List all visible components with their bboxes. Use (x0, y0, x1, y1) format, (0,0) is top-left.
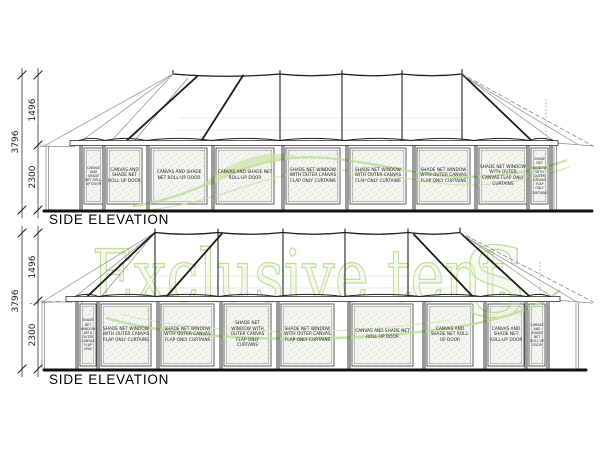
top-roof (40, 70, 594, 147)
top-eave (70, 141, 558, 146)
panel-inner-frame (109, 150, 140, 202)
blueprint-page: Exclusive tent S (0, 0, 600, 454)
drawing-svg: Exclusive tent S (0, 0, 600, 454)
panel-inner-frame (531, 306, 543, 364)
watermark-text: Exclusive tent (92, 236, 505, 319)
panel-inner-frame (352, 150, 404, 202)
bottom-dimension-lines (18, 226, 50, 377)
panel-inner-frame (86, 150, 101, 202)
top-dimension-lines (18, 68, 50, 218)
bottom-eave (66, 297, 560, 302)
